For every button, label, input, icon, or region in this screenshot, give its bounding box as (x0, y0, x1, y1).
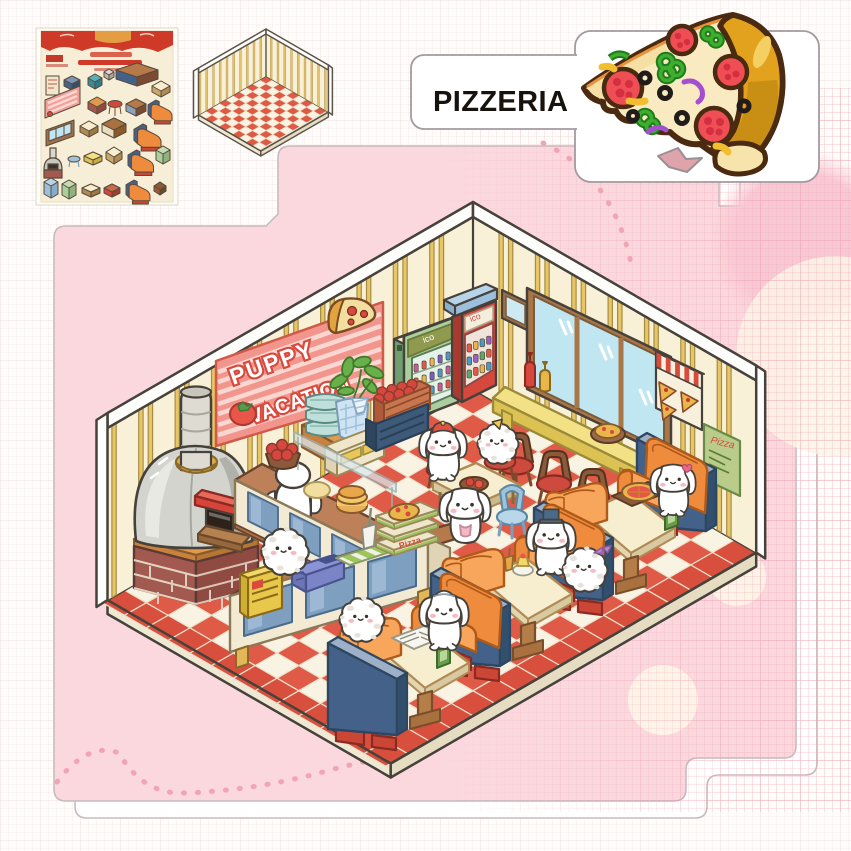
svg-text:PIZZERIA: PIZZERIA (433, 86, 568, 118)
